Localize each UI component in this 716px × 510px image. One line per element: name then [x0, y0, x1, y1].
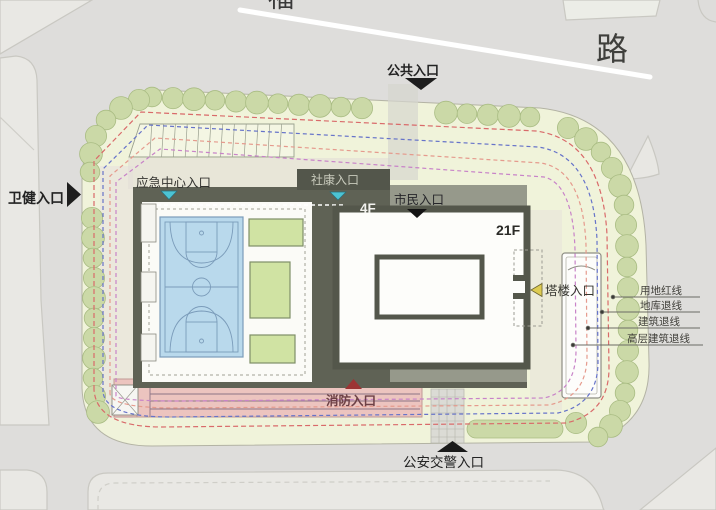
block-bottom-left	[0, 470, 47, 510]
tree	[520, 107, 540, 127]
grid-pavement	[431, 389, 464, 443]
legend-label-red-line: 用地红线	[640, 284, 682, 297]
tree	[435, 101, 458, 124]
basketball-court	[160, 217, 243, 357]
tree	[351, 98, 372, 119]
public-entrance-label: 公共入口	[387, 63, 439, 78]
tree	[246, 91, 269, 114]
tree	[616, 361, 639, 384]
tree	[616, 235, 639, 258]
tree	[614, 195, 634, 215]
tower-entrance-slot	[513, 281, 525, 293]
podium-floor-label: 4F	[360, 201, 376, 216]
tree	[457, 104, 477, 124]
tree	[225, 91, 246, 112]
health-entrance-label: 卫健入口	[8, 190, 64, 206]
roof-bulkheads	[141, 204, 156, 361]
tree	[80, 162, 100, 182]
community-entrance-label: 社康入口	[311, 172, 359, 187]
basement-ramp	[562, 253, 601, 398]
tower-entrance-label: 塔楼入口	[545, 283, 595, 298]
tree	[615, 383, 635, 403]
tree	[183, 88, 206, 111]
tree	[82, 227, 105, 250]
tree	[477, 104, 498, 125]
tree	[609, 175, 632, 198]
emergency-entrance-label: 应急中心入口	[136, 175, 211, 190]
tree	[83, 368, 103, 388]
tree	[288, 94, 309, 115]
block-top-right	[563, 0, 660, 20]
legend-label-building-setback: 建筑退线	[638, 315, 680, 328]
site-plan-svg: 福 路 公共入口 卫健入口 应急中心入口 社康入口 市民入口 4F 21F 塔楼…	[0, 0, 716, 510]
partial-road-name-label: 福	[268, 0, 294, 13]
tree	[83, 248, 103, 268]
tree	[617, 298, 640, 321]
citizen-entrance-label: 市民入口	[394, 192, 444, 207]
tree	[331, 97, 351, 117]
tree	[588, 427, 608, 447]
tree	[81, 207, 102, 228]
tree	[309, 95, 332, 118]
tree	[565, 412, 586, 433]
tree	[268, 94, 288, 114]
legend-label-basement-setback: 地库退线	[640, 299, 682, 312]
tree	[162, 88, 183, 109]
tower-core	[377, 257, 482, 317]
tree	[615, 214, 636, 235]
tree	[617, 257, 637, 277]
tree	[617, 277, 638, 298]
tower-floor-label: 21F	[496, 222, 521, 238]
public-entrance-path	[388, 84, 418, 180]
tree	[498, 105, 521, 128]
tree	[205, 91, 225, 111]
block-bottom-center	[88, 470, 604, 510]
fire-entrance-label: 消防入口	[326, 393, 376, 408]
site-plan: 福 路 公共入口 卫健入口 应急中心入口 社康入口 市民入口 4F 21F 塔楼…	[0, 0, 716, 510]
road-label: 路	[596, 31, 628, 67]
police-entrance-label: 公安交警入口	[403, 454, 484, 470]
parking-strip	[129, 124, 294, 157]
legend-label-highrise-setback: 高层建筑退线	[627, 332, 690, 345]
